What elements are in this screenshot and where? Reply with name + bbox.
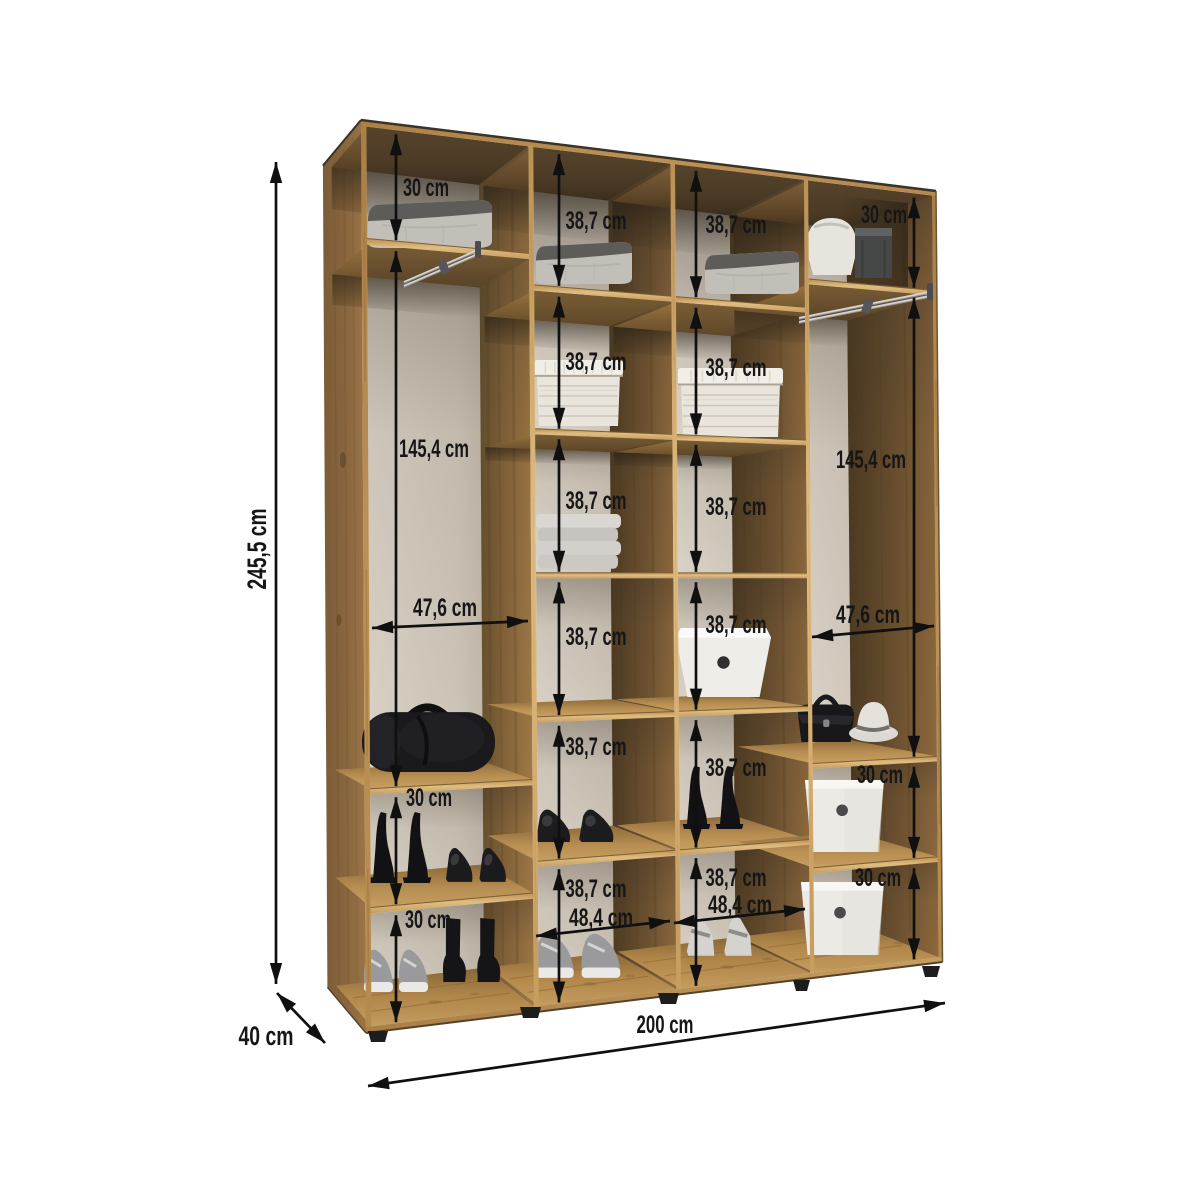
svg-text:30 cm: 30 cm (861, 201, 907, 229)
svg-text:38,7 cm: 38,7 cm (706, 354, 767, 382)
svg-text:38,7 cm: 38,7 cm (566, 207, 627, 235)
svg-text:38,7 cm: 38,7 cm (566, 487, 627, 515)
svg-text:38,7 cm: 38,7 cm (566, 348, 627, 376)
svg-text:38,7 cm: 38,7 cm (706, 611, 767, 639)
svg-text:38,7 cm: 38,7 cm (706, 493, 767, 521)
svg-text:30 cm: 30 cm (403, 174, 449, 202)
svg-text:30 cm: 30 cm (406, 784, 452, 812)
svg-text:245,5 cm: 245,5 cm (242, 509, 272, 590)
svg-text:30 cm: 30 cm (855, 864, 901, 892)
svg-text:48,4 cm: 48,4 cm (708, 891, 772, 919)
svg-text:145,4 cm: 145,4 cm (836, 446, 906, 474)
svg-text:38,7 cm: 38,7 cm (566, 623, 627, 651)
svg-text:30 cm: 30 cm (857, 761, 903, 789)
svg-text:38,7 cm: 38,7 cm (706, 754, 767, 782)
svg-text:38,7 cm: 38,7 cm (566, 733, 627, 761)
svg-text:48,4 cm: 48,4 cm (569, 904, 633, 932)
svg-text:40 cm: 40 cm (239, 1021, 294, 1051)
svg-text:47,6 cm: 47,6 cm (413, 594, 477, 622)
svg-text:200 cm: 200 cm (637, 1011, 694, 1039)
svg-text:47,6 cm: 47,6 cm (836, 601, 900, 629)
svg-text:38,7 cm: 38,7 cm (706, 864, 767, 892)
svg-text:145,4 cm: 145,4 cm (399, 435, 469, 463)
svg-text:30 cm: 30 cm (405, 906, 451, 934)
svg-text:38,7 cm: 38,7 cm (566, 875, 627, 903)
svg-text:38,7 cm: 38,7 cm (706, 211, 767, 239)
